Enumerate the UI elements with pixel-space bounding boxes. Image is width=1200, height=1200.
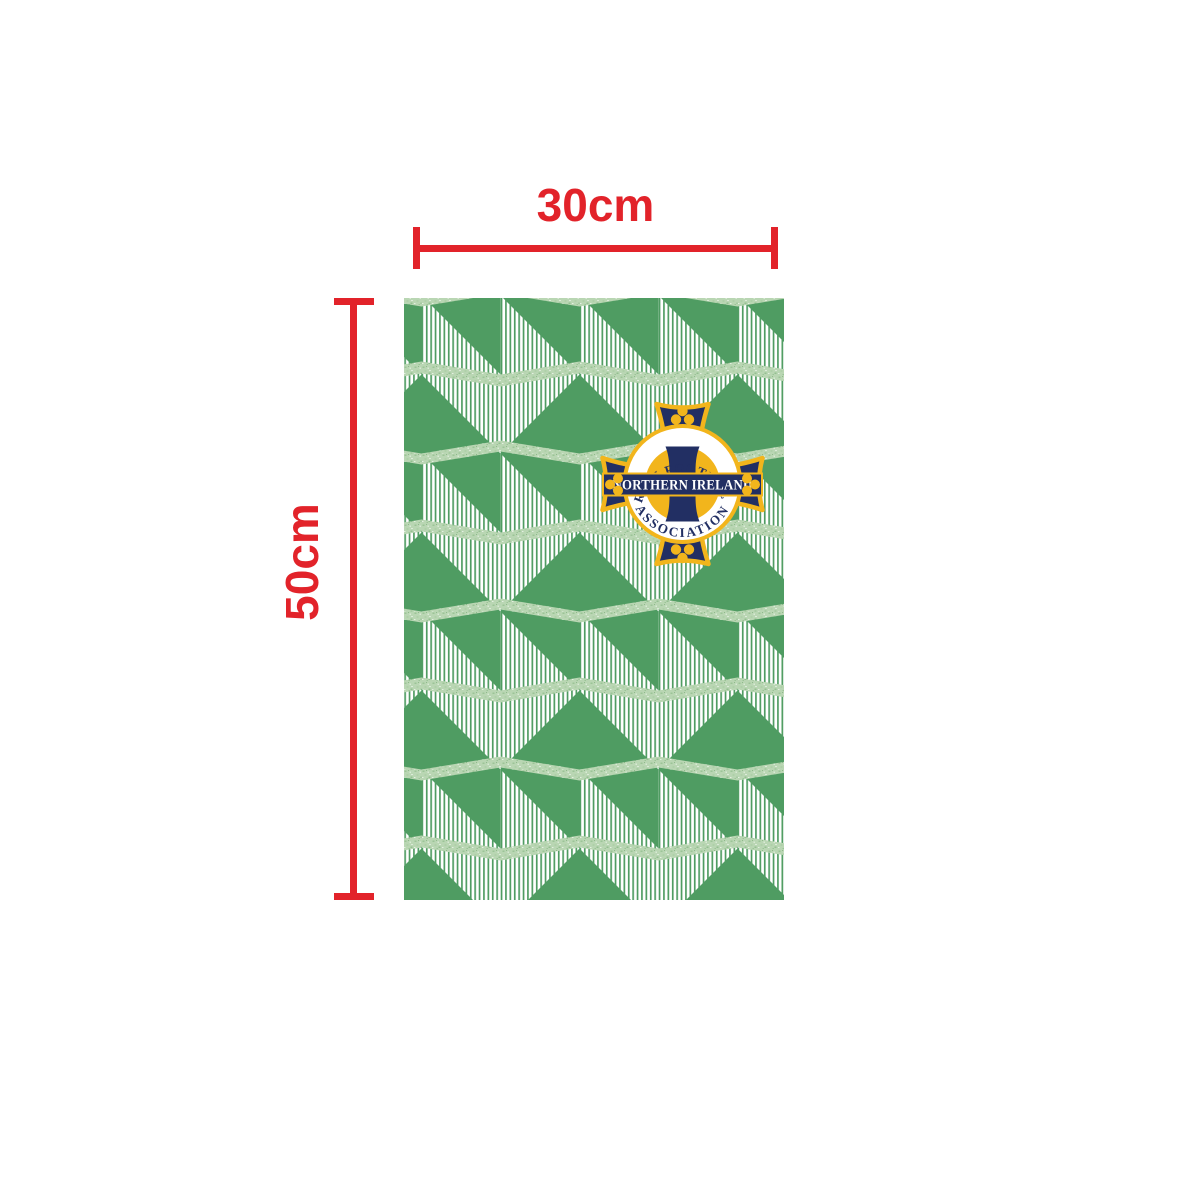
product-panel-image: IRISH FOOTBALL ASSOCIATION NORTHERN IREL… (404, 298, 784, 900)
height-dimension-line (350, 298, 357, 900)
product-dimension-sheet: 30cm 50cm (0, 0, 1200, 1200)
width-dimension-line (413, 245, 778, 252)
height-dimension-label: 50cm (279, 482, 325, 642)
height-dimension-cap-top (334, 298, 374, 305)
height-dimension-cap-bottom (334, 893, 374, 900)
width-dimension-label: 30cm (413, 182, 778, 228)
width-dimension-cap-left (413, 227, 420, 269)
pattern-canvas: IRISH FOOTBALL ASSOCIATION NORTHERN IREL… (404, 298, 784, 900)
crest-banner-text: NORTHERN IRELAND (613, 477, 753, 493)
width-dimension-cap-right (771, 227, 778, 269)
